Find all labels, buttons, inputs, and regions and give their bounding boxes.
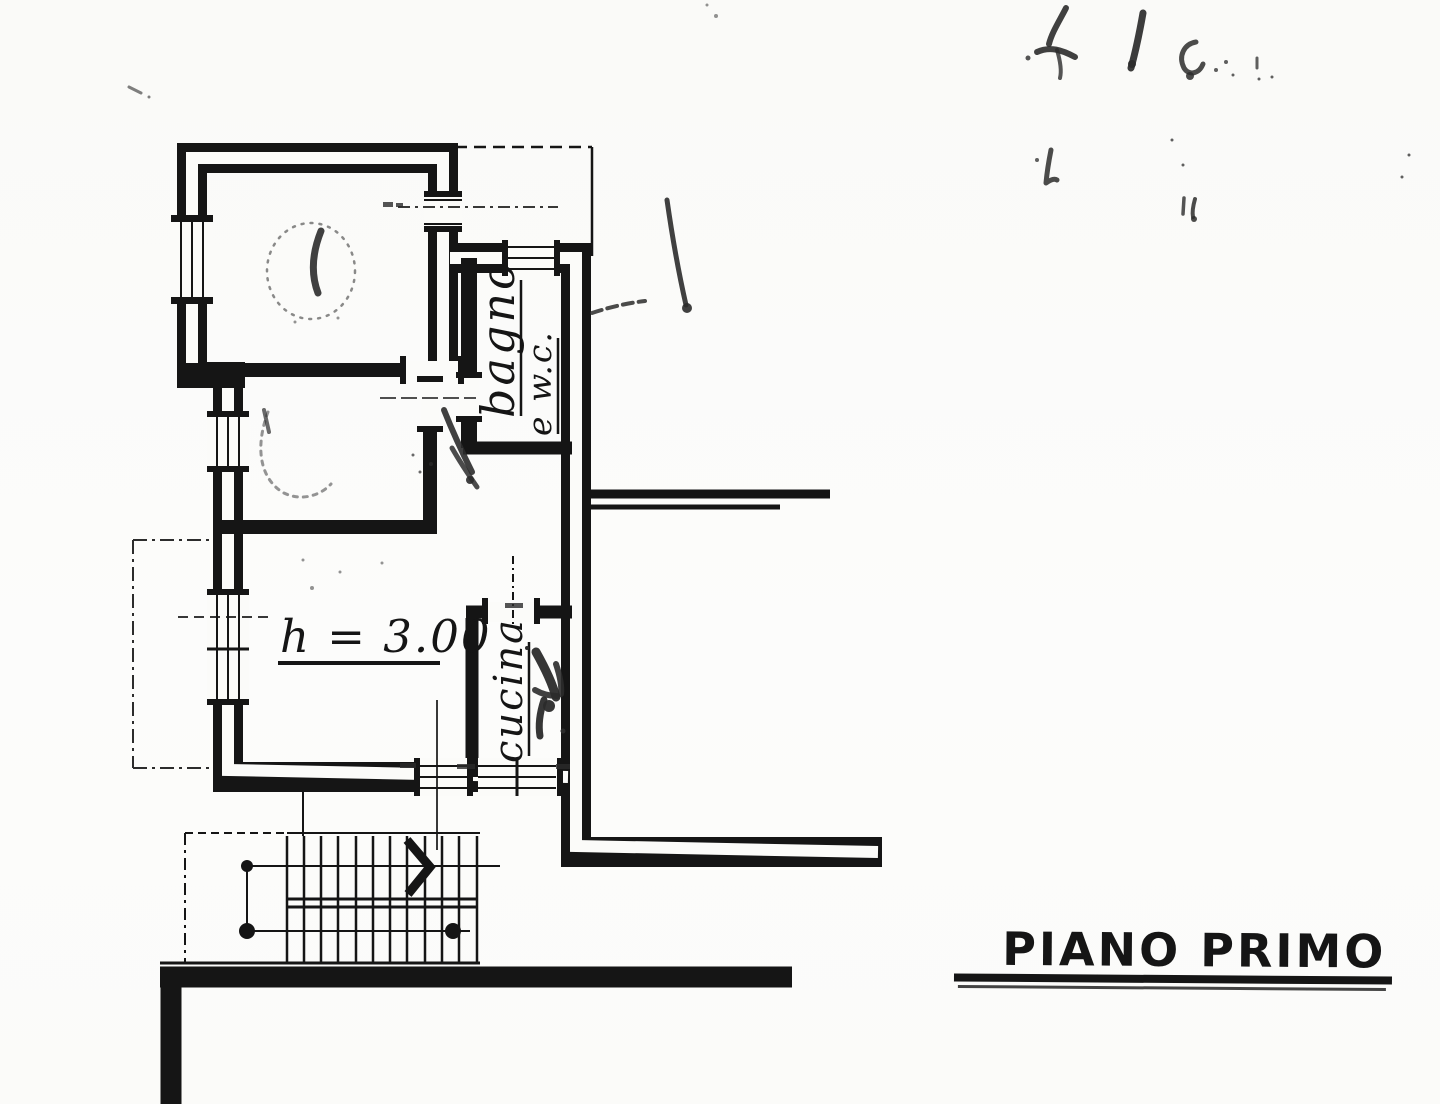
wall-core (192, 158, 443, 368)
room-labels: bagno e w.c. cucina h = 3.00 (278, 259, 559, 763)
floor-title-underline-2 (958, 987, 1386, 990)
stair-post-dot (239, 923, 255, 939)
door-room2 (421, 382, 439, 426)
door-room1-terrace (424, 197, 462, 227)
floor-title-underline (954, 977, 1392, 980)
plan-title-block: PIANO PRIMO (954, 921, 1392, 989)
wall-room1-envelope (192, 158, 443, 375)
bathroom-wc-label: e w.c. (520, 330, 559, 436)
staircase (185, 791, 500, 963)
pencil-scribbles-top-right (129, 8, 1411, 222)
ceiling-height-label: h = 3.00 (280, 610, 492, 663)
stair-post-dot (241, 860, 253, 872)
floor-title: PIANO PRIMO (1002, 922, 1387, 979)
stair-post-dot (445, 923, 461, 939)
scribble-dots (1035, 60, 1411, 179)
sketch-stroke-room1 (313, 231, 321, 293)
floor-plan-drawing: bagno e w.c. cucina h = 3.00 PIANO PRIMO (0, 0, 1440, 1104)
scanned-floor-plan-page: bagno e w.c. cucina h = 3.00 PIANO PRIMO (0, 0, 1440, 1104)
kitchen-label: cucina (486, 618, 532, 763)
pencil-slash-bathroom (667, 200, 686, 305)
bathroom-label: bagno (471, 259, 525, 418)
sketch-curve-room2 (261, 412, 331, 497)
stair-landing-line (287, 899, 477, 907)
building-base-walls (160, 963, 792, 1104)
pencil-dash-bathroom (592, 301, 645, 313)
balcony-dashed-outline (133, 540, 214, 768)
pencil-mark-top-left (129, 87, 141, 93)
